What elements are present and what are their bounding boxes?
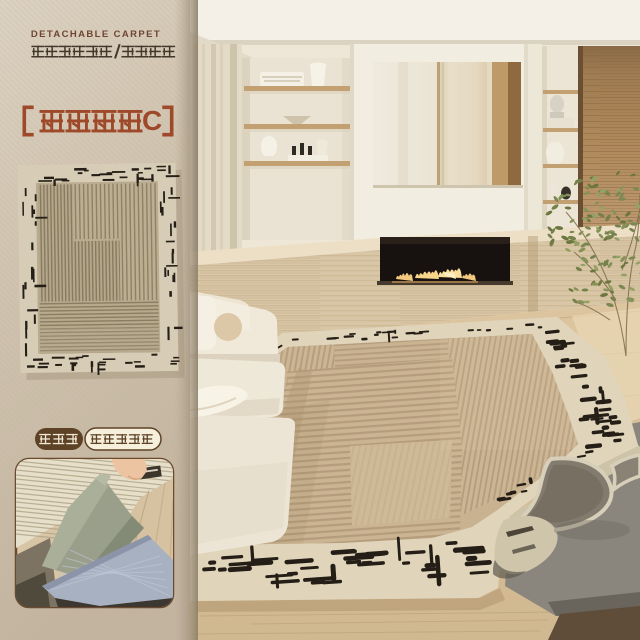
svg-text:DETACHABLE CARPET: DETACHABLE CARPET — [31, 29, 161, 40]
svg-text:C: C — [142, 105, 162, 136]
